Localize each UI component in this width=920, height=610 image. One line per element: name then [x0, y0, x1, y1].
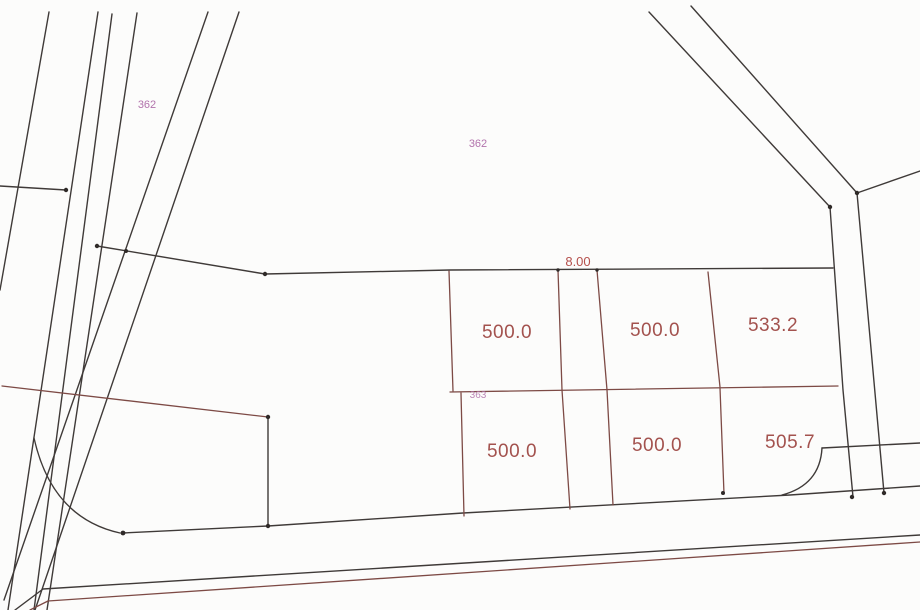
plan-labels: 362 362 363 8.00 500.0 500.0 533.2 500.0…: [138, 99, 815, 462]
road-lines-bottom: [15, 535, 920, 610]
parcel-area-label: 505.7: [765, 432, 815, 453]
road-lines-top-right: [649, 6, 920, 497]
parcel-area-label: 500.0: [482, 322, 532, 343]
lane-width-dimension: 8.00: [565, 254, 590, 269]
parcel-area-label: 533.2: [748, 315, 798, 336]
survey-point-dots: [64, 188, 886, 536]
site-plan-canvas: 362 362 363 8.00 500.0 500.0 533.2 500.0…: [0, 0, 920, 610]
parcel-area-label: 500.0: [630, 320, 680, 341]
parcel-subdivision-lines: [2, 270, 838, 516]
parcel-area-label: 500.0: [487, 441, 537, 462]
road-lines-left: [0, 12, 239, 610]
zone-label: 362: [138, 99, 156, 111]
zone-label: 363: [470, 390, 487, 401]
parcel-area-label: 500.0: [632, 435, 682, 456]
site-plan-drawing: 362 362 363 8.00 500.0 500.0 533.2 500.0…: [0, 0, 920, 610]
zone-label: 362: [469, 138, 487, 150]
